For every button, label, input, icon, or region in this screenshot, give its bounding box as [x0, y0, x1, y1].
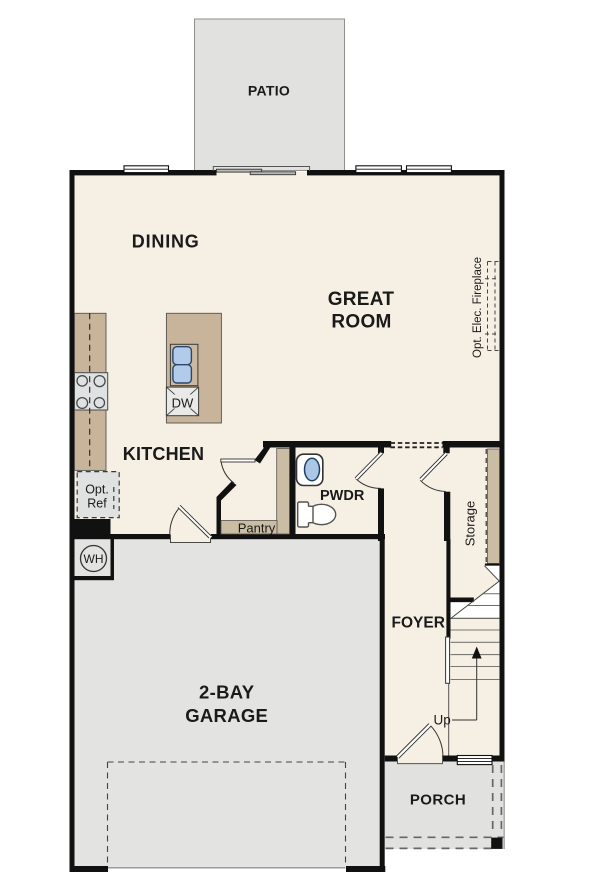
- svg-text:PORCH: PORCH: [410, 791, 466, 808]
- svg-text:Opt. Elec. Fireplace: Opt. Elec. Fireplace: [472, 257, 484, 358]
- svg-text:WH: WH: [84, 552, 104, 566]
- svg-text:ROOM: ROOM: [331, 312, 391, 333]
- svg-text:KITCHEN: KITCHEN: [123, 444, 204, 464]
- svg-text:Pantry: Pantry: [238, 521, 276, 536]
- svg-text:GREAT: GREAT: [328, 289, 395, 310]
- svg-text:PWDR: PWDR: [320, 488, 365, 504]
- svg-text:DINING: DINING: [132, 232, 200, 252]
- svg-text:2-BAY: 2-BAY: [199, 682, 255, 703]
- svg-text:Opt.: Opt.: [85, 483, 109, 497]
- svg-text:FOYER: FOYER: [392, 614, 445, 631]
- svg-text:Storage: Storage: [463, 501, 478, 547]
- svg-text:Ref: Ref: [87, 497, 107, 511]
- svg-text:GARAGE: GARAGE: [185, 705, 268, 726]
- svg-text:Up: Up: [434, 713, 451, 728]
- svg-text:PATIO: PATIO: [248, 83, 290, 99]
- svg-text:DW: DW: [172, 395, 194, 410]
